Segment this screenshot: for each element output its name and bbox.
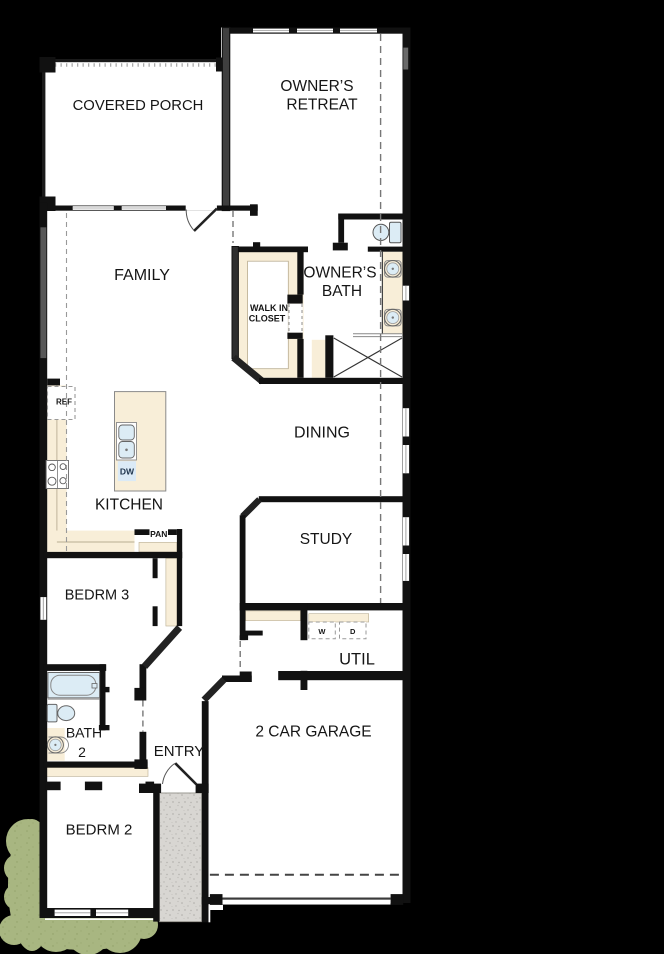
svg-text:RETREAT: RETREAT [286, 97, 358, 114]
svg-text:W: W [318, 627, 326, 636]
svg-text:KITCHEN: KITCHEN [95, 497, 163, 514]
svg-text:PAN: PAN [150, 529, 167, 539]
svg-text:UTIL: UTIL [339, 651, 375, 669]
svg-text:OWNER’S: OWNER’S [303, 265, 376, 282]
svg-text:BEDRM 3: BEDRM 3 [65, 588, 129, 604]
svg-text:BATH: BATH [322, 283, 362, 300]
svg-text:CLOSET: CLOSET [249, 314, 286, 324]
svg-text:D: D [350, 627, 356, 636]
svg-text:BEDRM 2: BEDRM 2 [66, 822, 133, 839]
svg-text:ENTRY: ENTRY [154, 743, 205, 760]
svg-text:BATH: BATH [66, 725, 102, 741]
svg-text:OWNER’S: OWNER’S [280, 78, 353, 95]
svg-text:2: 2 [78, 744, 86, 760]
svg-text:STUDY: STUDY [300, 531, 353, 548]
svg-text:2 CAR GARAGE: 2 CAR GARAGE [255, 724, 371, 741]
svg-text:WALK IN: WALK IN [250, 303, 288, 313]
svg-text:DW: DW [120, 467, 135, 477]
svg-text:REF: REF [56, 398, 72, 407]
svg-text:DINING: DINING [294, 425, 350, 442]
svg-text:COVERED PORCH: COVERED PORCH [73, 98, 204, 114]
svg-text:FAMILY: FAMILY [114, 267, 170, 284]
